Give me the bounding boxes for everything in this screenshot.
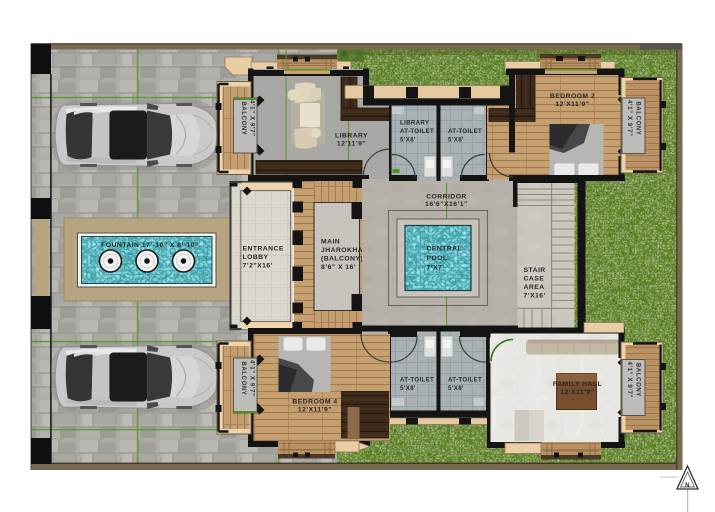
- svg-text:12’11’9”: 12’11’9”: [337, 141, 366, 148]
- svg-text:4’1” X 9’7”: 4’1” X 9’7”: [249, 100, 255, 137]
- svg-text:7’X16’: 7’X16’: [524, 293, 546, 300]
- svg-text:CENTRAL: CENTRAL: [427, 246, 463, 253]
- svg-text:BALCONY: BALCONY: [635, 102, 641, 136]
- svg-text:BEDROOM 4: BEDROOM 4: [292, 399, 337, 406]
- svg-text:BALCONY: BALCONY: [635, 363, 641, 397]
- svg-text:4’1” X 9’7”: 4’1” X 9’7”: [626, 100, 632, 137]
- svg-text:7’2”X16’: 7’2”X16’: [243, 263, 273, 270]
- svg-text:JHAROKHA: JHAROKHA: [321, 247, 363, 254]
- svg-text:7’X7’: 7’X7’: [427, 265, 445, 272]
- svg-text:BEDROOM 2: BEDROOM 2: [550, 93, 595, 100]
- svg-text:AT-TOILET: AT-TOILET: [400, 377, 434, 384]
- svg-text:AT-TOILET: AT-TOILET: [448, 128, 482, 135]
- svg-text:5’X8’: 5’X8’: [448, 137, 464, 144]
- svg-text:16’6”X16’1”: 16’6”X16’1”: [425, 201, 468, 208]
- svg-text:8’6” X 16’: 8’6” X 16’: [321, 264, 356, 271]
- svg-text:FOUNTAIN 17’-10” X 8’-10”: FOUNTAIN 17’-10” X 8’-10”: [101, 242, 199, 249]
- svg-text:5’X8’: 5’X8’: [448, 385, 464, 392]
- svg-text:LOBBY: LOBBY: [243, 254, 269, 261]
- svg-text:LIBRARY: LIBRARY: [400, 120, 429, 127]
- svg-text:CASE: CASE: [524, 276, 545, 283]
- svg-text:AT-TOILET: AT-TOILET: [448, 377, 482, 384]
- svg-text:POOL: POOL: [427, 255, 448, 262]
- svg-text:AREA: AREA: [524, 284, 545, 291]
- svg-text:12’X11’9”: 12’X11’9”: [298, 407, 332, 414]
- svg-text:4’1” X 9’7”: 4’1” X 9’7”: [249, 360, 255, 397]
- svg-text:AT-TOILET: AT-TOILET: [400, 128, 434, 135]
- svg-text:ENTRANCE: ENTRANCE: [243, 246, 284, 253]
- svg-text:FAMILY HALL: FAMILY HALL: [553, 381, 602, 388]
- svg-text:MAIN: MAIN: [321, 239, 340, 246]
- svg-text:12’X11’9”: 12’X11’9”: [555, 101, 589, 108]
- svg-text:12’X11’9”: 12’X11’9”: [560, 389, 594, 396]
- svg-text:N: N: [685, 482, 690, 489]
- svg-text:(BALCONY): (BALCONY): [321, 256, 363, 263]
- svg-text:5’X8’: 5’X8’: [400, 137, 416, 144]
- svg-text:BALCONY: BALCONY: [240, 102, 246, 136]
- svg-text:LIBRARY: LIBRARY: [335, 133, 368, 140]
- svg-text:4’1” X 9’7”: 4’1” X 9’7”: [626, 362, 632, 399]
- svg-text:STAIR: STAIR: [524, 267, 546, 274]
- svg-text:5’X8’: 5’X8’: [400, 385, 416, 392]
- svg-text:CORRIDOR: CORRIDOR: [426, 194, 467, 201]
- svg-text:BALCONY: BALCONY: [240, 362, 246, 396]
